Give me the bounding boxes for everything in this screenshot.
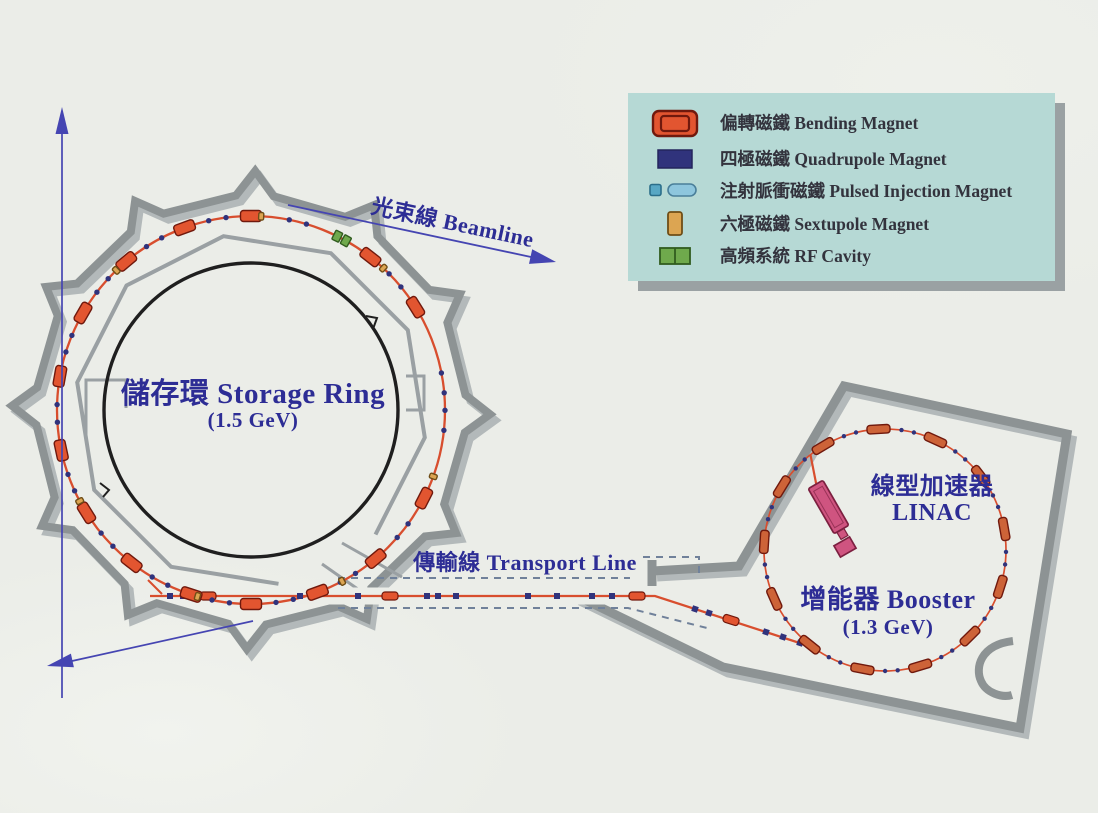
booster-bending-magnet xyxy=(908,658,932,673)
quadrupole-magnet xyxy=(439,370,444,375)
booster-quadrupole-magnet xyxy=(1003,562,1007,566)
quadrupole-magnet xyxy=(227,600,232,605)
quadrupole-magnet xyxy=(398,284,403,289)
quadrupole-magnet xyxy=(94,290,99,295)
quadrupole-magnet xyxy=(386,271,391,276)
quadrupole-magnet xyxy=(405,521,410,526)
transport-quadrupole-magnet xyxy=(525,593,531,599)
booster-bending-magnet xyxy=(759,530,769,554)
transport-quadrupole-magnet xyxy=(424,593,430,599)
quadrupole-magnet xyxy=(442,408,447,413)
booster-quadrupole-magnet xyxy=(1004,550,1008,554)
quadrupole-magnet xyxy=(65,472,70,477)
bending-magnet xyxy=(73,301,93,325)
sextupole-magnet xyxy=(194,592,201,601)
quadrupole-magnet xyxy=(72,488,77,493)
quadrupole-magnet xyxy=(63,349,68,354)
transport-quadrupole-magnet xyxy=(355,593,361,599)
quadrupole-magnet xyxy=(353,571,358,576)
booster-quadrupole-magnet xyxy=(827,655,831,659)
quadrupole-magnet xyxy=(144,244,149,249)
quadrupole-magnet xyxy=(165,583,170,588)
rf-cavity-icon xyxy=(644,246,706,266)
booster-quadrupole-magnet xyxy=(883,669,887,673)
axis-arrow-vertical-head xyxy=(56,107,69,134)
storage-ring-energy-label: (1.5 GeV) xyxy=(88,408,418,433)
booster-bending-magnet xyxy=(923,431,947,448)
legend-panel: 偏轉磁鐵 Bending Magnet 四極磁鐵 Quadrupole Magn… xyxy=(628,93,1055,281)
transport-quadrupole-magnet xyxy=(609,593,615,599)
legend-item-sextupole: 六極磁鐵 Sextupole Magnet xyxy=(644,210,1045,237)
booster-quadrupole-magnet xyxy=(899,428,903,432)
quadrupole-magnet xyxy=(287,217,292,222)
legend-item-bending: 偏轉磁鐵 Bending Magnet xyxy=(644,106,1045,140)
transport-quadrupole-magnet xyxy=(167,593,173,599)
legend-item-label: 高頻系統 RF Cavity xyxy=(720,243,871,268)
linac-label-en: LINAC xyxy=(832,500,1032,527)
quadrupole-magnet xyxy=(110,544,115,549)
booster-bending-magnet xyxy=(867,424,890,434)
quadrupole-magnet xyxy=(159,235,164,240)
bending-magnet xyxy=(53,365,67,388)
booster-label: 增能器 Booster xyxy=(763,579,1013,616)
sextupole-magnet xyxy=(259,212,264,220)
quadrupole-magnet xyxy=(395,535,400,540)
quadrupole-magnet xyxy=(55,420,60,425)
quadrupole-magnet xyxy=(442,390,447,395)
linac-label-zh: 線型加速器 xyxy=(832,466,1032,501)
legend-item-quadrupole: 四極磁鐵 Quadrupole Magnet xyxy=(644,146,1045,171)
transport-quadrupole-magnet xyxy=(435,593,441,599)
booster-energy-label: (1.3 GeV) xyxy=(763,615,1013,640)
booster-quadrupole-magnet xyxy=(766,517,770,521)
legend-item-pulsed-injection: 注射脈衝磁鐵 Pulsed Injection Magnet xyxy=(644,178,1045,203)
quadrupole-magnet xyxy=(69,333,74,338)
quadrupole-magnet xyxy=(223,215,228,220)
quadrupole-magnet xyxy=(304,221,309,226)
booster-quadrupole-magnet xyxy=(803,457,807,461)
booster-door xyxy=(979,641,1013,696)
quadrupole-magnet-icon xyxy=(644,148,706,170)
storage-ring-label: 儲存環 Storage Ring xyxy=(88,370,418,412)
transport-quadrupole-magnet xyxy=(705,609,713,617)
booster-quadrupole-magnet xyxy=(854,430,858,434)
quadrupole-magnet xyxy=(106,276,111,281)
bending-magnet-icon xyxy=(644,106,706,140)
booster-quadrupole-magnet xyxy=(939,655,943,659)
booster-quadrupole-magnet xyxy=(896,668,900,672)
transport-bending-magnet xyxy=(382,592,398,600)
booster-quadrupole-magnet xyxy=(794,466,798,470)
quadrupole-magnet xyxy=(206,218,211,223)
sextupole-magnet xyxy=(429,473,438,480)
transport-bending-magnet xyxy=(722,614,740,627)
pulsed-injection-magnet-icon xyxy=(644,181,706,199)
quadrupole-magnet xyxy=(209,597,214,602)
booster-quadrupole-magnet xyxy=(763,562,767,566)
booster-bending-magnet xyxy=(850,663,874,676)
bending-magnet xyxy=(120,552,143,574)
linac-end-block xyxy=(834,537,856,557)
quadrupole-magnet xyxy=(291,597,296,602)
quadrupole-magnet xyxy=(441,428,446,433)
axis-arrow-diagonal xyxy=(72,621,253,661)
axis-arrow-diagonal-head xyxy=(47,654,74,668)
booster-quadrupole-magnet xyxy=(842,434,846,438)
transport-dashed-guide xyxy=(338,608,707,628)
quadrupole-magnet xyxy=(54,402,59,407)
transport-quadrupole-magnet xyxy=(453,593,459,599)
quadrupole-magnet xyxy=(273,600,278,605)
transport-quadrupole-magnet xyxy=(297,593,303,599)
sextupole-magnet-icon xyxy=(644,210,706,237)
bending-magnet xyxy=(414,486,433,510)
quadrupole-magnet xyxy=(150,574,155,579)
booster-quadrupole-magnet xyxy=(912,430,916,434)
booster-quadrupole-magnet xyxy=(770,505,774,509)
bending-magnet xyxy=(241,599,262,610)
bending-magnet xyxy=(405,295,425,319)
legend-item-label: 六極磁鐵 Sextupole Magnet xyxy=(720,211,929,236)
facility-map: 儲存環 Storage Ring (1.5 GeV) 光束線 Beamline … xyxy=(0,0,1098,813)
transport-bending-magnet xyxy=(629,592,645,600)
legend-item-label: 注射脈衝磁鐵 Pulsed Injection Magnet xyxy=(720,178,1012,203)
transport-quadrupole-magnet xyxy=(691,605,699,613)
transport-line-label: 傳輸線 Transport Line xyxy=(390,545,660,577)
legend-item-label: 四極磁鐵 Quadrupole Magnet xyxy=(720,146,947,171)
quadrupole-magnet xyxy=(98,530,103,535)
booster-quadrupole-magnet xyxy=(950,648,954,652)
legend-item-label: 偏轉磁鐵 Bending Magnet xyxy=(720,110,918,135)
bending-magnet xyxy=(359,246,382,268)
legend-item-rf-cavity: 高頻系統 RF Cavity xyxy=(644,243,1045,268)
booster-quadrupole-magnet xyxy=(963,457,967,461)
booster-quadrupole-magnet xyxy=(838,660,842,664)
booster-quadrupole-magnet xyxy=(953,449,957,453)
transport-quadrupole-magnet xyxy=(589,593,595,599)
transport-quadrupole-magnet xyxy=(554,593,560,599)
